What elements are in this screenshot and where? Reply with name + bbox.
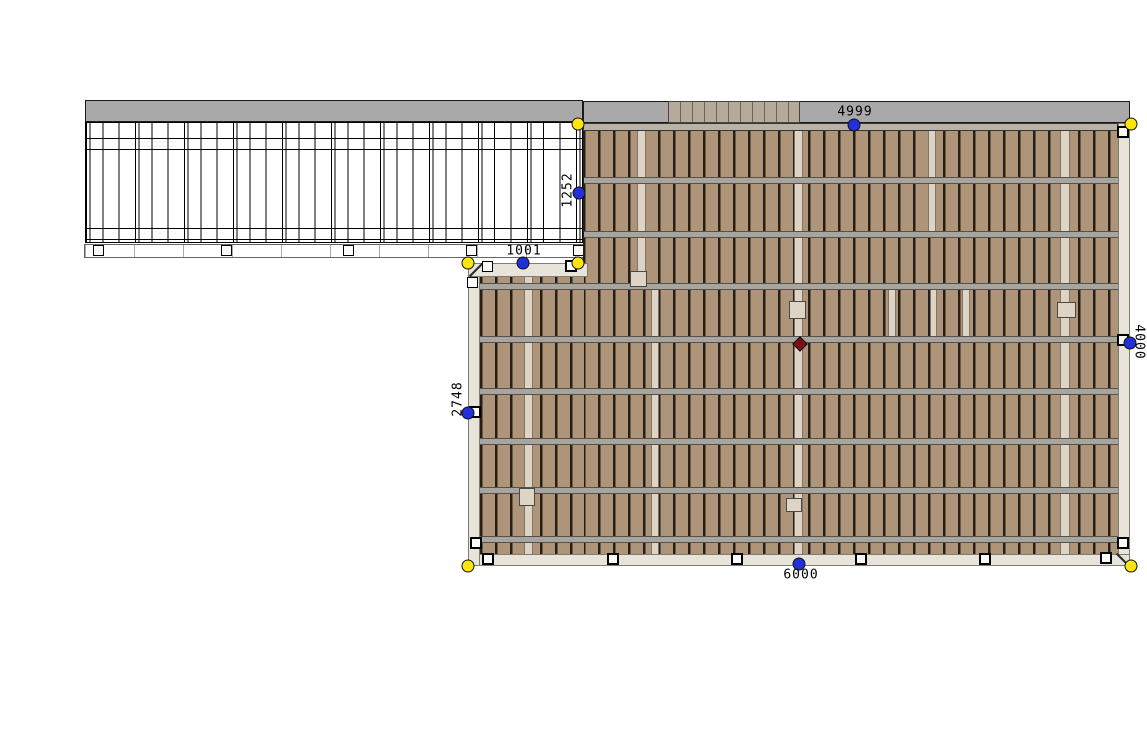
joist-band [584,177,1118,184]
dimension-label-lower-left[interactable]: 2748 [452,381,465,416]
post-marker [470,537,482,549]
joist-band [480,388,1118,395]
joist-band [480,536,1118,543]
post-marker [1117,537,1129,549]
dimension-label-upper-left[interactable]: 1252 [562,172,575,207]
post-marker [607,553,619,565]
blocking-piece [519,488,535,506]
pergola-ledger-line [86,228,582,229]
pergola-fascia-beam [85,100,583,122]
dimension-label-bottom[interactable]: 6000 [783,569,818,582]
joist-band [480,487,1118,494]
dimension-label-notch[interactable]: 1001 [506,245,541,258]
post-marker [221,245,232,256]
blocking-piece [630,271,647,287]
light-deck-board [637,131,646,283]
corner-handle[interactable] [462,257,475,270]
blocking-piece [789,301,806,319]
light-deck-board [930,290,937,337]
stair-treads [668,101,800,123]
post-marker [979,553,991,565]
dimension-label-top[interactable]: 4999 [837,106,872,119]
pergola-joist-grid [85,122,583,243]
dimension-label-right[interactable]: 4000 [1133,324,1146,359]
corner-handle[interactable] [1125,118,1138,131]
midpoint-handle[interactable] [848,119,861,132]
post-marker [466,245,477,256]
corner-handle[interactable] [462,560,475,573]
joist-band [584,231,1118,238]
post-marker [467,277,478,288]
light-deck-board [888,290,896,337]
joist-band [480,283,1118,290]
post-marker [855,553,867,565]
corner-handle[interactable] [572,257,585,270]
post-marker [1100,552,1112,564]
post-marker [93,245,104,256]
light-deck-board [651,290,659,554]
pergola-ledger-line [86,138,582,139]
drawing-canvas[interactable]: 4999 1252 1001 2748 4000 6000 [0,0,1147,732]
post-marker [482,261,493,272]
blocking-piece [786,498,802,512]
light-deck-board [524,277,533,554]
blocking-piece [1057,302,1076,318]
joist-band [480,438,1118,445]
post-marker [731,553,743,565]
post-marker [482,553,494,565]
pergola-ledger-line [86,149,582,150]
post-marker [343,245,354,256]
pergola-ledger-line [86,239,582,240]
light-deck-board [962,290,970,337]
corner-handle[interactable] [572,118,585,131]
corner-handle[interactable] [1125,560,1138,573]
